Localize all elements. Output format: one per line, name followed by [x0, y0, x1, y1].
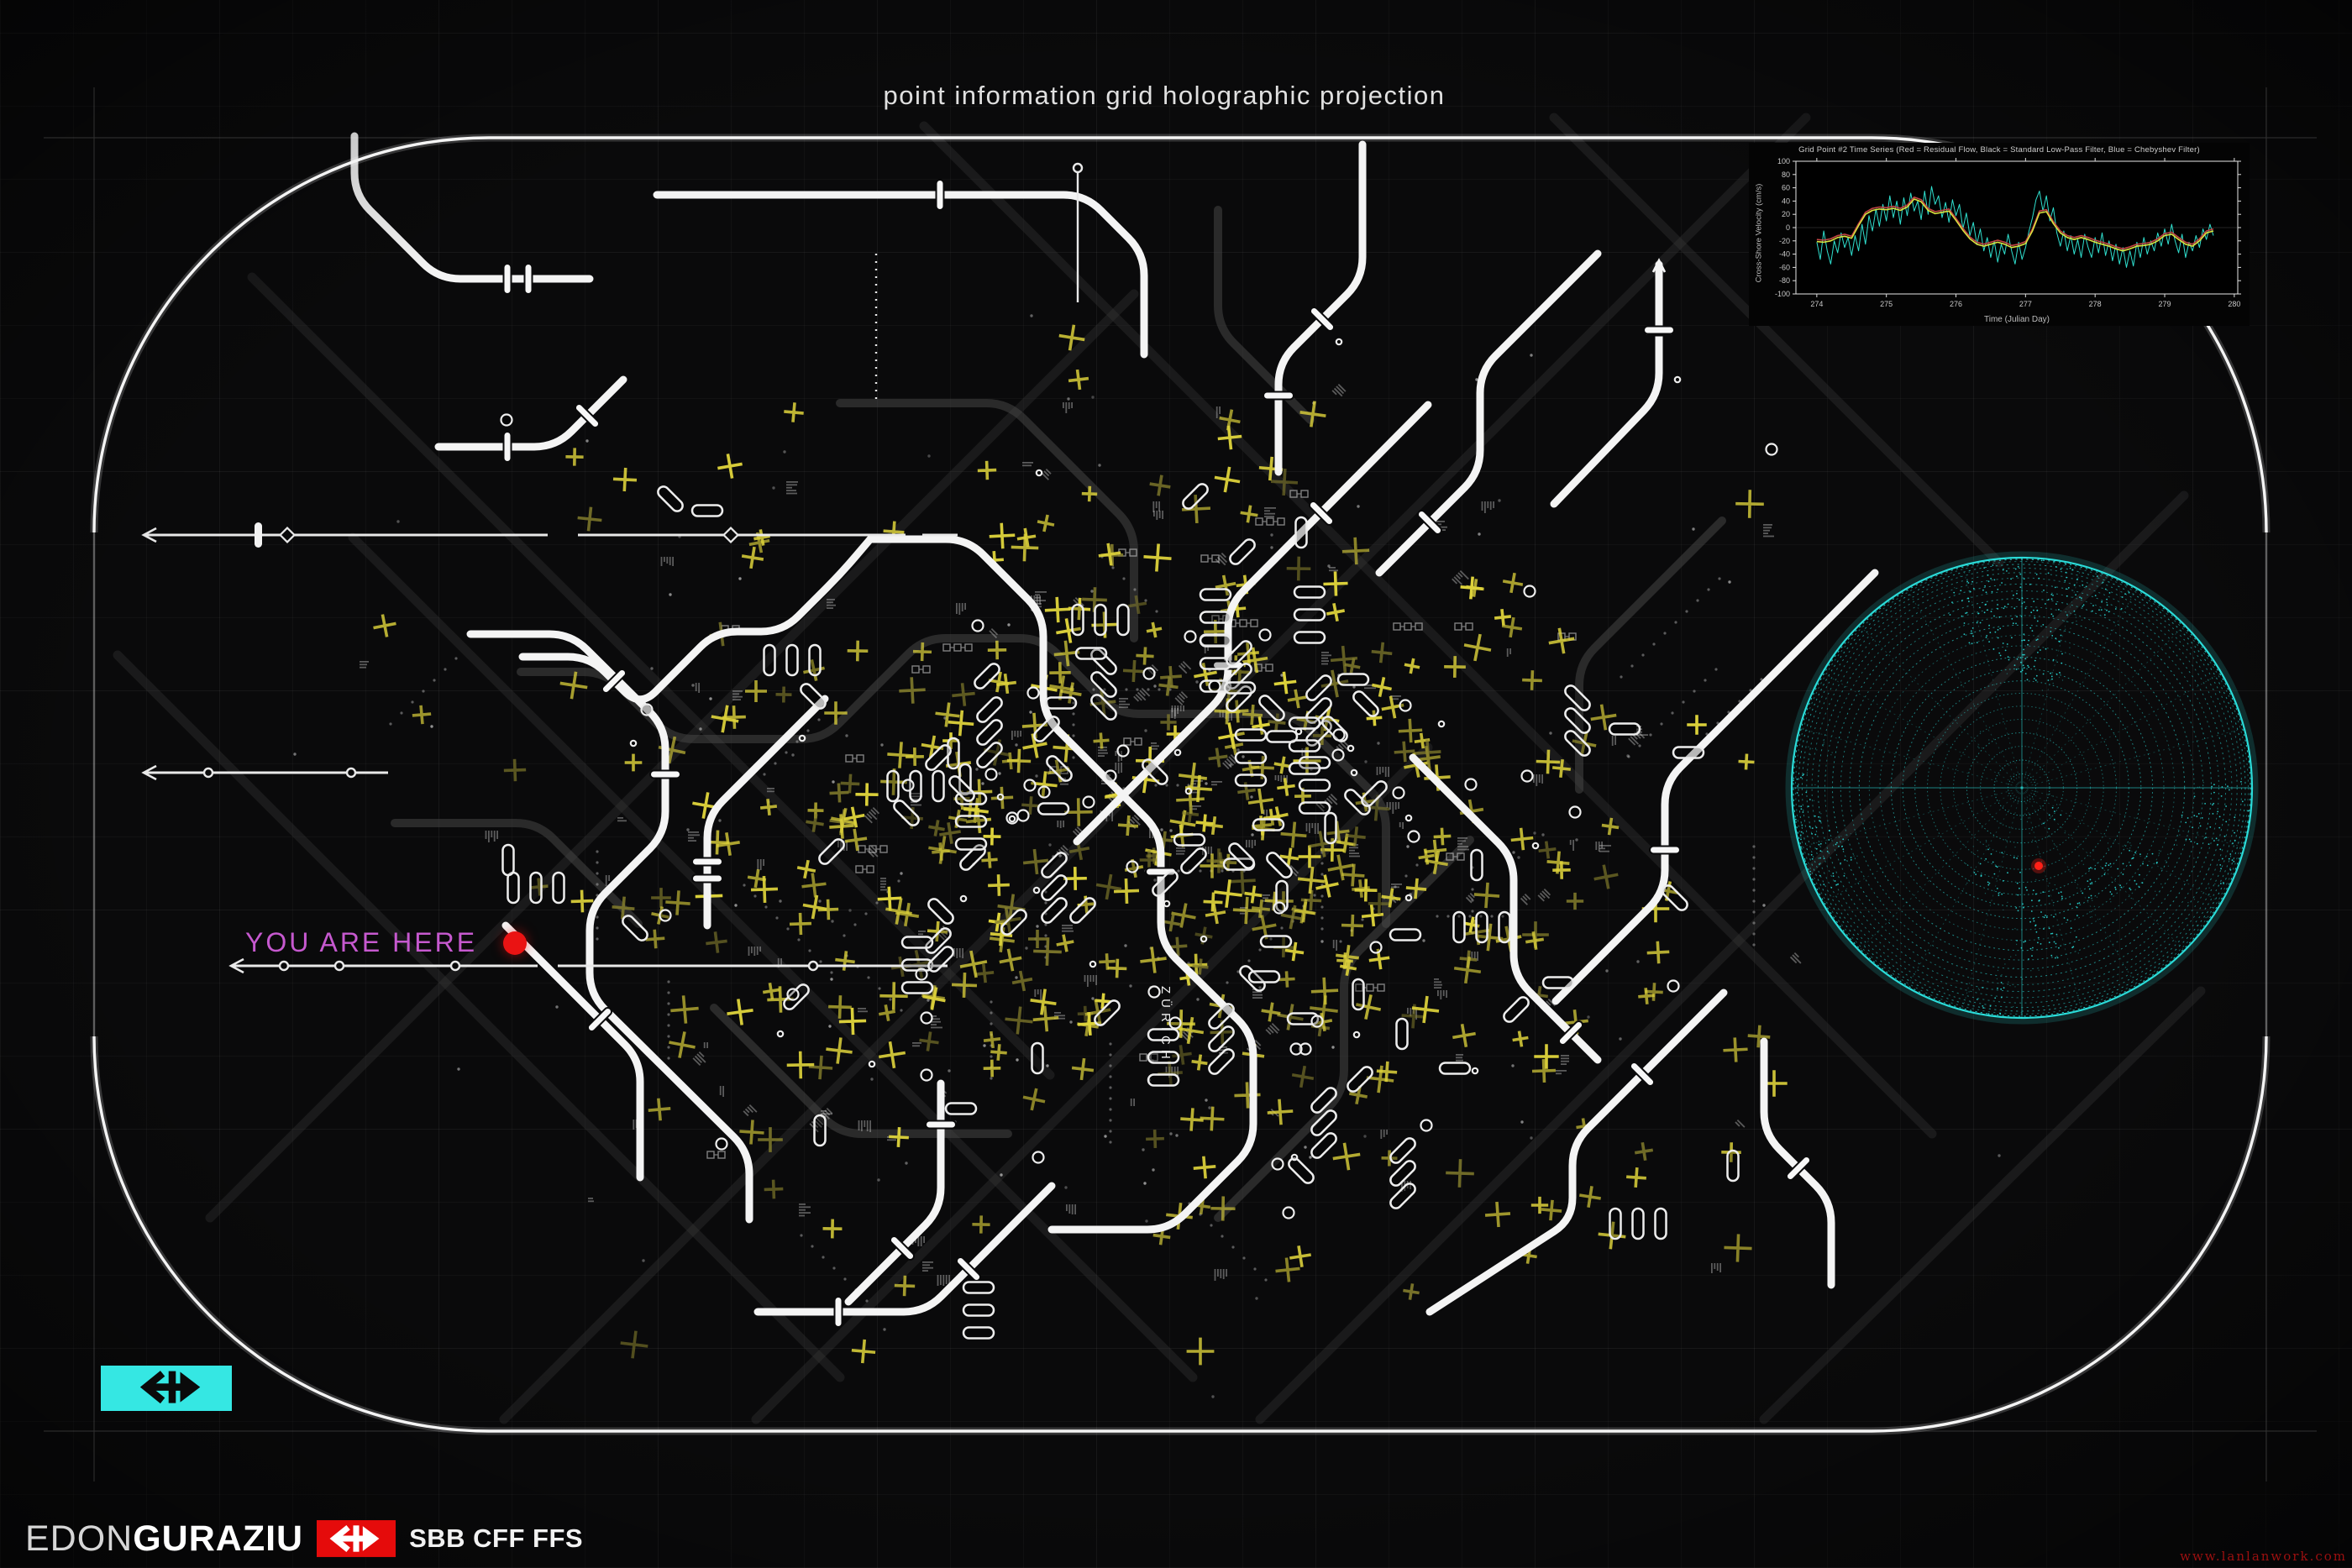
sbb-logo-badge-cyan [101, 1366, 232, 1411]
svg-text:274: 274 [1810, 300, 1823, 308]
svg-text:40: 40 [1782, 197, 1790, 205]
svg-text:275: 275 [1880, 300, 1893, 308]
sbb-logo-badge-red [317, 1520, 396, 1557]
svg-text:-20: -20 [1779, 237, 1790, 245]
svg-text:20: 20 [1782, 210, 1790, 218]
svg-text:80: 80 [1782, 170, 1790, 179]
svg-text:276: 276 [1950, 300, 1962, 308]
chart-title: Grid Point #2 Time Series (Red = Residua… [1749, 145, 2250, 155]
city-label: ZÜRICH [1158, 986, 1173, 1064]
svg-text:277: 277 [2019, 300, 2032, 308]
author-name: EDONGURAZIU [25, 1521, 303, 1557]
page-title: point information grid holographic proje… [0, 81, 2328, 111]
author-first-name: EDON [25, 1518, 133, 1559]
svg-text:278: 278 [2089, 300, 2102, 308]
credits-bar: EDONGURAZIU SBB CFF FFS [25, 1520, 583, 1557]
location-dot [503, 931, 527, 955]
globe-location-marker [2034, 862, 2043, 870]
svg-text:-100: -100 [1775, 290, 1790, 298]
author-last-name: GURAZIU [133, 1518, 303, 1559]
you-are-here-label: YOU ARE HERE [245, 927, 477, 958]
timeseries-chart: -100-80-60-40-20020406080100274275276277… [1749, 143, 2250, 326]
svg-text:-40: -40 [1779, 250, 1790, 259]
svg-text:280: 280 [2228, 300, 2240, 308]
svg-text:60: 60 [1782, 184, 1790, 192]
globe-wireframe [1788, 554, 2255, 1021]
sbb-logo-icon [317, 1520, 396, 1557]
svg-text:100: 100 [1777, 157, 1790, 165]
operator-name: SBB CFF FFS [409, 1523, 583, 1554]
sbb-logo-icon [101, 1366, 232, 1411]
chart-y-axis-label: Cross-Shore Velocity (cm/s) [1755, 166, 1764, 301]
svg-text:-60: -60 [1779, 263, 1790, 271]
svg-text:-80: -80 [1779, 276, 1790, 285]
holo-display: point information grid holographic proje… [0, 0, 2352, 1568]
chart-x-axis-label: Time (Julian Day) [1796, 315, 2238, 324]
svg-text:279: 279 [2159, 300, 2171, 308]
timeseries-chart-panel: -100-80-60-40-20020406080100274275276277… [1749, 143, 2250, 326]
watermark: www.lanlanwork.com [2180, 1549, 2347, 1564]
svg-text:0: 0 [1786, 223, 1790, 232]
